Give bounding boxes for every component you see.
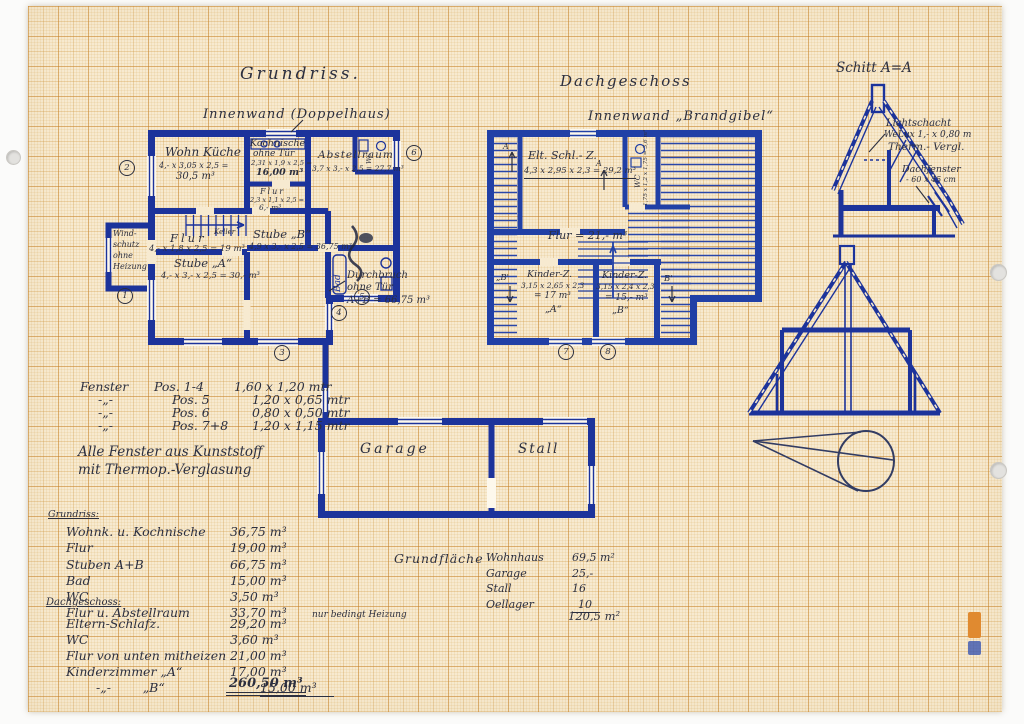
room-kinder-a-vol: = 17 m³ <box>534 292 571 301</box>
room-kinder-b: Kinder-Z. <box>602 271 647 281</box>
flaeche-value: 16 <box>572 581 586 597</box>
room-flur-klein-vol: 6,- m³ <box>259 204 281 212</box>
window-marker-4: 4 <box>331 305 347 321</box>
window-marker-1: 1 <box>117 288 133 304</box>
label-keller: Keller <box>214 229 235 236</box>
room-wohnkueche-vol: 30,5 m³ <box>176 172 215 183</box>
note-durchbruch-2: ohne Tür <box>347 283 393 294</box>
volume-value: 21,00 m³ <box>230 648 304 664</box>
volume-value: 29,20 m³ <box>230 616 304 632</box>
volume-row: Bad15,00 m³ <box>66 573 407 589</box>
room-kochnische-vol: 16,00 m³ <box>256 168 303 178</box>
fenster-schedule: Fenster Pos. 1-4 1,60 x 1,20 mtr -„- Pos… <box>80 380 350 433</box>
garage-stall-plan <box>317 417 596 515</box>
volume-row: WC3,60 m³ <box>66 632 334 648</box>
fenster-col-pos: Pos. 7+8 <box>172 419 252 432</box>
volume-label: Stuben A+B <box>66 557 230 573</box>
volume-value: 3,50 m³ <box>230 589 304 605</box>
room-wohnkueche: Wohn Küche <box>165 146 241 159</box>
fenster-row: -„- Pos. 7+8 1,20 x 1,15 mtr <box>80 419 350 432</box>
fenster-note-1: Alle Fenster aus Kunststoff <box>78 445 263 459</box>
flaeche-label: Stall <box>486 581 572 597</box>
volumes-dach-header: Dachgeschoss: <box>46 598 121 609</box>
room-windschutz-4: Heizung <box>113 263 147 271</box>
gable-truss-section <box>749 246 940 413</box>
volume-row: Wohnk. u. Kochnische36,75 m³ <box>66 524 407 540</box>
volumes-dach-total: 260,50 m³ <box>226 677 306 696</box>
note-lichtschacht-2: WeLux 1,- x 0,80 m <box>884 131 971 140</box>
note-lichtschacht-3: Therm.- Vergl. <box>888 142 964 153</box>
flaeche-label: Wohnhaus <box>486 550 572 566</box>
fenster-col-label: Fenster <box>80 380 154 393</box>
volumes-grundriss-header: Grundriss: <box>48 510 99 520</box>
cone-sketch <box>753 431 894 491</box>
window-marker-7: 7 <box>558 344 574 360</box>
section-mark-b2: B' <box>664 275 673 284</box>
window-marker-6: 6 <box>406 145 422 161</box>
room-stube-a: Stube „A“ <box>174 257 232 269</box>
volume-value: 19,00 m³ <box>230 540 304 556</box>
note-dachfenster-1: Dachfenster <box>902 165 961 175</box>
room-kinder-b-vol: = 15,- m³ <box>605 294 648 303</box>
room-kinder-a-dims: 3,15 x 2,65 x 2,3 <box>521 282 584 290</box>
room-flur: Flur <box>170 232 207 244</box>
note-lichtschacht-1: Lichtschacht <box>886 119 951 130</box>
title-dachgeschoss: Dachgeschoss <box>560 74 692 90</box>
label-innenwand-doppelhaus: Innenwand (Doppelhaus) <box>203 108 391 122</box>
room-bad: Bad <box>334 252 343 292</box>
title-schnitt-a-a: Schitt A=A <box>836 61 912 75</box>
room-kinder-a-tag: „A“ <box>545 305 562 315</box>
room-wc-eg: WC <box>366 142 373 164</box>
fenster-col-label: -„- <box>80 393 172 406</box>
room-windschutz-2: schutz <box>113 241 139 249</box>
volumes-grundriss-list: Wohnk. u. Kochnische36,75 m³ Flur19,00 m… <box>66 524 407 624</box>
volume-value: 36,75 m³ <box>230 524 304 540</box>
room-wc-og: WC <box>634 158 642 188</box>
volume-row: Stuben A+B66,75 m³ <box>66 557 407 573</box>
window-marker-2: 2 <box>119 160 135 176</box>
volume-label: Kinderzimmer „A“ <box>66 664 230 680</box>
flaeche-row: Wohnhaus69,5 m² <box>486 550 615 566</box>
fenster-col-label: -„- <box>80 406 172 419</box>
note-durchbruch-1: Durchbruch <box>347 271 408 282</box>
room-wc-og-dims: 1,75 x 1,2 x 1,75 = 3,6 m³ <box>643 140 649 206</box>
section-mark-b1: „B' <box>496 274 509 283</box>
volume-label: Bad <box>66 573 230 589</box>
flaechen-header: Grundfläche <box>394 552 484 565</box>
volume-row: Flur19,00 m³ <box>66 540 407 556</box>
volume-label: Wohnk. u. Kochnische <box>66 524 230 540</box>
flaeche-label: Oellager <box>486 597 572 613</box>
room-abstellraum: Abstellraum <box>318 150 394 161</box>
flaeche-row: Garage25,- <box>486 566 615 582</box>
room-kinder-b-dims: 3,15 x 2,4 x 2,3 <box>596 283 655 291</box>
flaeche-value: 69,5 m² <box>572 550 615 566</box>
room-flur-og: Flur = 21,- m³ <box>548 230 627 242</box>
note-dachfenster-2: - 60 x 45 cm <box>906 176 956 184</box>
fenster-col-size: 1,20 x 1,15 mtr <box>252 419 350 432</box>
room-stube-b-dims: 4,9 x 3,- x 2,5 = 36,75 m³ <box>249 243 352 251</box>
room-elt-schlafz-dims: 4,3 x 2,95 x 2,3 = 29,2 m³ <box>524 167 636 179</box>
fenster-col-label: -„- <box>80 419 172 432</box>
volume-row: Flur von unten mitheizen21,00 m³ <box>66 648 334 664</box>
room-kinder-a: Kinder-Z. <box>527 270 572 280</box>
room-stall: Stall <box>518 442 559 456</box>
flaeche-row: Stall16 <box>486 581 615 597</box>
volume-label: WC <box>66 632 230 648</box>
room-abstellraum-dims: 3,7 x 3,- x 2,5 = 27,7 m³ <box>312 165 404 173</box>
section-a-a <box>833 85 963 236</box>
room-stube-a-dims: 4,- x 3,- x 2,5 = 30,- m³ <box>161 272 260 281</box>
volume-label: Flur von unten mitheizen <box>66 648 230 664</box>
scanned-blueprint-page: Grundriss. Innenwand (Doppelhaus) Dachge… <box>0 0 1024 724</box>
window-marker-3: 3 <box>274 345 290 361</box>
volume-value: 15,00 m³ <box>230 573 304 589</box>
room-flur-dims: 4,- x 1,8 x 2,5 = 19 m³ <box>149 245 245 254</box>
flaeche-label: Garage <box>486 566 572 582</box>
room-wohnkueche-dims: 4,- x 3,05 x 2,5 = <box>159 162 228 170</box>
volume-label: Eltern-Schlafz. <box>66 616 230 632</box>
room-kochnische: Kochnische <box>250 139 305 149</box>
volume-label: Flur <box>66 540 230 556</box>
window-marker-8: 8 <box>600 344 616 360</box>
volume-row: Eltern-Schlafz.29,20 m³ <box>66 616 334 632</box>
room-stube-b: Stube „B“ <box>253 228 311 240</box>
window-marker-5: 5 <box>354 289 370 305</box>
label-innenwand-brandgibel: Innenwand „Brandgibel“ <box>588 110 774 124</box>
room-elt-schlafz: Elt. Schl.- Z. <box>528 150 597 162</box>
section-mark-a2: A <box>596 160 602 168</box>
room-windschutz-3: ohne <box>113 252 133 260</box>
fenster-note-2: mit Thermop.-Verglasung <box>78 463 251 477</box>
room-garage: Garage <box>360 442 430 457</box>
room-kinder-b-tag: „B“ <box>612 306 629 316</box>
section-mark-a1: A <box>503 143 509 151</box>
volume-value: 66,75 m³ <box>230 557 304 573</box>
flaechen-total: 120,5 m² <box>568 610 620 622</box>
title-grundriss: Grundriss. <box>240 66 361 84</box>
volume-value: 3,60 m³ <box>230 632 304 648</box>
flaechen-list: Wohnhaus69,5 m² Garage25,- Stall16 Oella… <box>486 550 615 613</box>
room-windschutz-1: Wind- <box>113 230 137 238</box>
flaeche-value: 25,- <box>572 566 593 582</box>
